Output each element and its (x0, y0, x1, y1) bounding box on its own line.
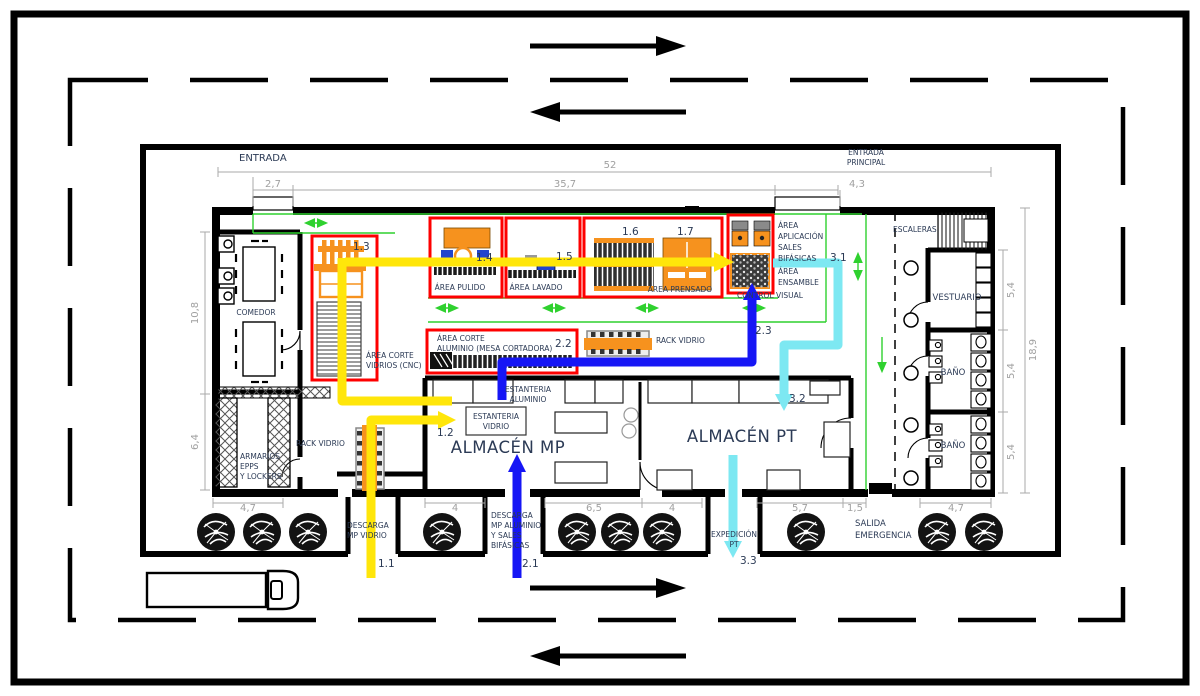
dim-bottom-1: 4,7 (240, 503, 256, 514)
descarga-aluminio-label-2: MP ALUMINIO (491, 521, 541, 530)
entrada-label: ENTRADA (239, 153, 287, 164)
entrada-principal-label-1: ENTRADA (848, 148, 885, 157)
dim-left-upper: 10,8 (190, 302, 201, 324)
corte-aluminio-label-1: ÁREA CORTE (437, 334, 485, 343)
corte-vidrios-label-1: ÁREA CORTE (366, 351, 414, 360)
escaleras-label: ESCALERAS (893, 225, 937, 234)
flow-1-7: 1.7 (677, 226, 694, 238)
dim-production: 35,7 (554, 179, 576, 190)
flow-3-2: 3.2 (789, 393, 806, 405)
aplicacion-label-3: SALES (778, 243, 802, 252)
entrada-principal-label-2: PRINCIPAL (847, 158, 886, 167)
plan-canvas: ENTRADA ENTRADA PRINCIPAL 52 2,7 35,7 4,… (0, 0, 1200, 696)
flow-2-1: 2.1 (522, 558, 539, 570)
dim-bottom-2: 4 (452, 503, 458, 514)
dim-bottom-7: 4,7 (948, 503, 964, 514)
control-visual-label: CONTROL VISUAL (737, 291, 804, 300)
armarios-label-3: Y LOCKERS (239, 472, 282, 481)
corte-vidrios-label-2: VIDRIOS (CNC) (366, 361, 422, 370)
salida-emergencia-label-2: EMERGENCIA (855, 531, 912, 541)
estanteria-aluminio-label-1: ESTANTERIA (505, 385, 552, 394)
almacen-pt-label: ALMACÉN PT (687, 427, 798, 446)
corte-aluminio-label-2: ALUMINIO (MESA CORTADORA) (437, 344, 552, 353)
dim-right-3: 5,4 (1006, 444, 1017, 460)
aplicacion-label-2: APLICACIÓN (778, 232, 823, 241)
flow-3-3: 3.3 (740, 555, 757, 567)
prensado-label: ÁREA PRENSADO (648, 285, 712, 294)
dim-bottom-3: 6,5 (586, 503, 602, 514)
stairs (938, 212, 990, 250)
lavado-label: ÁREA LAVADO (509, 283, 562, 292)
dim-right-1: 5,4 (1006, 282, 1017, 298)
dim-bottom-6: 1,5 (847, 503, 863, 514)
salida-emergencia-door (869, 483, 892, 494)
expedicion-label-2: PT (729, 540, 739, 549)
flow-1-5: 1.5 (556, 251, 573, 263)
flow-2-3: 2.3 (755, 325, 772, 337)
truck-icon (147, 571, 298, 609)
descarga-vidrio-label-1: DESCARGA (347, 521, 390, 530)
descarga-aluminio-label-4: BIFÁSICAS (491, 541, 529, 550)
dim-door-entrada: 2,7 (265, 179, 281, 190)
estanteria-vidrio-label-1: ESTANTERIA (473, 412, 520, 421)
entrada-door (253, 197, 293, 210)
aplicacion-label-4: BIFÁSICAS (778, 254, 816, 263)
flow-1-6: 1.6 (622, 226, 639, 238)
flow-1-2: 1.2 (437, 427, 454, 439)
top-wall-fixture (685, 206, 699, 214)
dim-top-total: 52 (604, 160, 617, 171)
descarga-aluminio-label-1: DESCARGA (491, 511, 534, 520)
dim-right-total: 18,9 (1028, 339, 1039, 361)
dim-bottom-4: 4 (669, 503, 675, 514)
factory-layout-plan: ENTRADA ENTRADA PRINCIPAL 52 2,7 35,7 4,… (0, 0, 1200, 696)
flow-1-1: 1.1 (378, 558, 395, 570)
ensamble-label-1: ÁREA (778, 267, 799, 276)
expedicion-label-1: EXPEDICIÓN (711, 530, 757, 539)
estanteria-vidrio-label-2: VIDRIO (483, 422, 510, 431)
dim-bottom-5: 5,7 (792, 503, 808, 514)
dim-left-lower: 6,4 (190, 434, 201, 450)
almacen-mp-label: ALMACÉN MP (451, 438, 565, 457)
dim-door-principal: 4,3 (849, 179, 865, 190)
entrada-principal-door (775, 197, 840, 210)
pulido-label: ÁREA PULIDO (435, 283, 486, 292)
comedor-label: COMEDOR (236, 308, 275, 317)
flow-1-4: 1.4 (476, 252, 493, 264)
armarios-label-1: ARMARIOS (240, 452, 280, 461)
estanteria-aluminio-label-2: ALUMINIO (510, 395, 547, 404)
flow-3-1: 3.1 (830, 252, 847, 264)
bano1-label: BAÑO (941, 367, 966, 378)
aplicacion-label-1: ÁREA (778, 221, 799, 230)
rack-vidrio-left-label: RACK VIDRIO (296, 439, 345, 448)
descarga-aluminio-label-3: Y SALES (490, 531, 522, 540)
flow-1-3: 1.3 (353, 241, 370, 253)
dim-right-2: 5,4 (1006, 363, 1017, 379)
rack-vidrio-top-label: RACK VIDRIO (656, 336, 705, 345)
vestuario-label: VESTUARIO (933, 293, 982, 303)
salida-emergencia-label-1: SALIDA (855, 519, 886, 529)
bano2-label: BAÑO (941, 440, 966, 451)
armarios-label-2: EPPS (240, 462, 259, 471)
descarga-vidrio-label-2: MP VIDRIO (347, 531, 387, 540)
ensamble-label-2: ENSAMBLE (778, 278, 819, 287)
flow-2-2: 2.2 (555, 338, 572, 350)
rack-vidrio-top (584, 331, 652, 356)
